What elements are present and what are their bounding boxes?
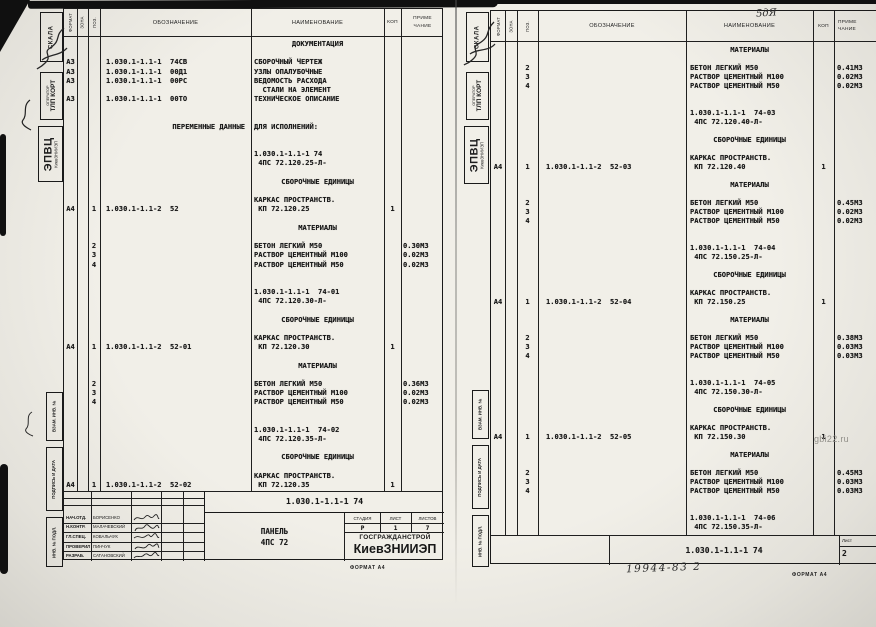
spec-row — [64, 407, 442, 416]
cell-note: 0.45М3 — [834, 468, 876, 477]
cell-qty — [813, 450, 834, 459]
cell-name: 1.030.1-1.1-1 74 — [251, 149, 384, 158]
cell-zone — [505, 153, 517, 162]
cell-note: 0.02М3 — [834, 207, 876, 216]
col-header-qty: КОП — [384, 9, 401, 36]
cell-qty — [813, 234, 834, 243]
cell-qty — [384, 250, 401, 259]
cell-qty — [384, 315, 401, 324]
stage-value: Р — [345, 525, 380, 532]
cell-qty — [813, 207, 834, 216]
cell-qty — [384, 379, 401, 388]
cell-format — [64, 351, 77, 360]
cell-designation — [100, 269, 251, 278]
cell-designation — [538, 234, 686, 243]
cell-zone — [505, 432, 517, 441]
signature-row — [133, 533, 160, 541]
cell-pos: 3 — [517, 207, 538, 216]
spec-row: 4ПС 72.120.40-Л- — [491, 117, 876, 126]
cell-format — [491, 405, 505, 414]
cell-pos — [517, 288, 538, 297]
spec-row: 4РАСТВОР ЦЕМЕНТНЫЙ М500.02М3 — [64, 397, 442, 406]
cell-designation — [100, 361, 251, 370]
cell-name: БЕТОН ЛЕГКИЙ М50 — [251, 379, 384, 388]
cell-designation — [100, 434, 251, 443]
cell-designation — [100, 443, 251, 452]
cell-note — [401, 122, 442, 131]
cell-pos — [88, 452, 100, 461]
cell-zone — [77, 131, 88, 140]
spec-row: 3РАСТВОР ЦЕМЕНТНЫЙ М1000.03М3 — [491, 342, 876, 351]
cell-qty — [384, 94, 401, 103]
cell-qty — [813, 252, 834, 261]
spec-row — [64, 351, 442, 360]
designation-cell: 1.030.1-1.1-1 74 — [204, 491, 444, 513]
approval-name: ПИНЧУК — [93, 544, 110, 549]
cell-qty — [384, 434, 401, 443]
cell-qty — [384, 39, 401, 48]
cell-qty — [384, 57, 401, 66]
cell-format — [491, 468, 505, 477]
cell-name: БЕТОН ЛЕГКИЙ М50 — [686, 468, 813, 477]
spec-row — [491, 396, 876, 405]
spec-row: СБОРОЧНЫЕ ЕДИНИЦЫ — [64, 315, 442, 324]
left-table-body: ДОКУМЕНТАЦИЯА31.030.1-1.1-1 74СВСБОРОЧНЫ… — [64, 36, 442, 494]
cell-name — [686, 306, 813, 315]
cell-note: 0.02М3 — [834, 81, 876, 90]
col-header-name: НАИМЕНОВАНИЕ — [686, 11, 813, 41]
cell-name: МАТЕРИАЛЫ — [686, 315, 813, 324]
cell-name — [251, 324, 384, 333]
cell-format — [491, 135, 505, 144]
spec-row: 2БЕТОН ЛЕГКИЙ М500.41М3 — [491, 63, 876, 72]
spec-row: 1.030.1-1.1-1 74-02 — [64, 425, 442, 434]
col-header-designation: ОБОЗНАЧЕНИЕ — [538, 11, 686, 41]
cell-note — [401, 361, 442, 370]
cell-note — [834, 108, 876, 117]
spec-row: СБОРОЧНЫЕ ЕДИНИЦЫ — [64, 177, 442, 186]
change-table — [64, 491, 204, 513]
cell-zone — [505, 162, 517, 171]
sheet-number-box: Лист 2 — [839, 535, 876, 565]
spec-row: 4РАСТВОР ЦЕМЕНТНЫЙ М500.02М3 — [64, 260, 442, 269]
stamp-podpis-left: ПОДПИСЬ И ДАТА — [46, 447, 63, 511]
cell-note — [401, 204, 442, 213]
cell-name: СБОРОЧНЫЕ ЕДИНИЦЫ — [251, 177, 384, 186]
cell-note — [834, 135, 876, 144]
cell-designation — [538, 135, 686, 144]
spec-row: СБОРОЧНЫЕ ЕДИНИЦЫ — [491, 135, 876, 144]
cell-note — [834, 261, 876, 270]
cell-designation: 1.030.1-1.1-2 52-02 — [100, 480, 251, 489]
cell-note — [834, 513, 876, 522]
cell-format — [491, 360, 505, 369]
cell-pos: 1 — [517, 432, 538, 441]
cell-format — [491, 171, 505, 180]
cell-name — [251, 351, 384, 360]
cell-pos — [88, 462, 100, 471]
stamp-inv-left: ИНВ. № ПОДЛ. — [46, 517, 63, 567]
cell-designation — [538, 495, 686, 504]
cell-name: КП 72.120.35 — [251, 480, 384, 489]
org-name: КиевЗНИИЭП — [54, 137, 59, 171]
cell-name — [686, 504, 813, 513]
cell-designation — [100, 158, 251, 167]
cell-designation — [538, 90, 686, 99]
cell-zone — [505, 306, 517, 315]
cell-format — [491, 324, 505, 333]
cell-zone — [505, 342, 517, 351]
cell-designation — [538, 360, 686, 369]
cell-designation — [538, 504, 686, 513]
cell-format — [491, 81, 505, 90]
cell-zone — [505, 450, 517, 459]
cell-format — [491, 450, 505, 459]
cell-name: КП 72.120.40 — [686, 162, 813, 171]
cell-zone — [505, 180, 517, 189]
cell-zone — [505, 423, 517, 432]
col-note-label-1: ПРИМЕ — [838, 19, 857, 26]
cell-zone — [77, 85, 88, 94]
cell-pos — [517, 387, 538, 396]
cell-qty — [384, 223, 401, 232]
cell-designation — [100, 462, 251, 471]
cell-name: КАРКАС ПРОСТРАНСТВ. — [686, 423, 813, 432]
cell-note — [401, 471, 442, 480]
cell-zone — [505, 333, 517, 342]
spec-row — [491, 54, 876, 63]
spec-row: А411.030.1-1.1-2 52-02 КП 72.120.351 — [64, 480, 442, 489]
org-abbr: ЭПВЦ — [468, 138, 480, 172]
cell-name: СБОРОЧНЫЕ ЕДИНИЦЫ — [686, 405, 813, 414]
cell-format — [64, 232, 77, 241]
cell-name: КАРКАС ПРОСТРАНСТВ. — [251, 195, 384, 204]
cell-pos — [88, 149, 100, 158]
cell-pos — [517, 405, 538, 414]
cell-pos — [88, 214, 100, 223]
cell-zone — [77, 379, 88, 388]
cell-format — [491, 234, 505, 243]
cell-pos: 1 — [517, 162, 538, 171]
cell-note — [401, 186, 442, 195]
cell-qty — [384, 177, 401, 186]
spec-row: 2БЕТОН ЛЕГКИЙ М500.45М3 — [491, 468, 876, 477]
cell-name — [686, 225, 813, 234]
cell-format: А4 — [491, 432, 505, 441]
cell-zone — [505, 477, 517, 486]
cell-name — [686, 234, 813, 243]
cell-zone — [505, 468, 517, 477]
cell-qty — [384, 361, 401, 370]
cell-format — [491, 216, 505, 225]
cell-format — [491, 513, 505, 522]
cell-name: УЗЛЫ ОПАЛУБОЧНЫЕ — [251, 67, 384, 76]
cell-format — [64, 397, 77, 406]
cell-name — [251, 278, 384, 287]
cell-pos — [88, 361, 100, 370]
cell-name: РАСТВОР ЦЕМЕНТНЫЙ М100 — [686, 72, 813, 81]
cell-format — [64, 296, 77, 305]
cell-qty: 1 — [813, 162, 834, 171]
cell-pos — [517, 270, 538, 279]
cell-designation — [538, 513, 686, 522]
cell-note — [834, 117, 876, 126]
cell-pos — [88, 287, 100, 296]
pen-scribble-2 — [22, 410, 36, 438]
cell-qty — [384, 186, 401, 195]
cell-name: КАРКАС ПРОСТРАНСТВ. — [251, 333, 384, 342]
spec-row: 4ПС 72.150.25-Л- — [491, 252, 876, 261]
spec-row — [491, 504, 876, 513]
cell-qty — [813, 81, 834, 90]
cell-format — [64, 113, 77, 122]
cell-designation: ПЕРЕМЕННЫЕ ДАННЫЕ — [100, 122, 251, 131]
spec-row — [64, 214, 442, 223]
cell-note — [834, 360, 876, 369]
cell-note — [834, 504, 876, 513]
cell-note — [401, 452, 442, 461]
cell-pos: 4 — [517, 81, 538, 90]
cell-pos — [88, 76, 100, 85]
cell-zone — [77, 407, 88, 416]
spec-row — [491, 261, 876, 270]
cell-format — [491, 306, 505, 315]
col-header-zone: ЗОНА — [77, 9, 88, 36]
cell-designation — [538, 216, 686, 225]
operator-value: ТЛП КОРТ — [50, 80, 57, 112]
cell-name: БЕТОН ЛЕГКИЙ М50 — [686, 63, 813, 72]
spec-row — [64, 186, 442, 195]
cell-note — [834, 252, 876, 261]
spec-row: 4ПС 72.120.25-Л- — [64, 158, 442, 167]
cell-pos — [517, 117, 538, 126]
stage-sheet-block: СТАДИЯ ЛИСТ ЛИСТОВ Р 1 7 ГОСГРАЖДАНСТРОЙ… — [344, 513, 444, 561]
cell-name: МАТЕРИАЛЫ — [686, 45, 813, 54]
cell-format — [491, 387, 505, 396]
cell-note — [834, 459, 876, 468]
cell-pos — [88, 168, 100, 177]
col-header-pos: ПОЗ. — [88, 9, 100, 36]
spec-row: 2БЕТОН ЛЕГКИЙ М500.45М3 — [491, 198, 876, 207]
cell-designation — [538, 378, 686, 387]
cell-pos: 2 — [517, 63, 538, 72]
cell-format — [491, 225, 505, 234]
cell-format — [64, 39, 77, 48]
cell-name — [251, 370, 384, 379]
cell-note — [401, 223, 442, 232]
cell-pos — [517, 495, 538, 504]
cell-pos — [88, 443, 100, 452]
cell-name: 4ПС 72.150.35-Л- — [686, 522, 813, 531]
cell-name — [251, 214, 384, 223]
cell-format: А4 — [64, 342, 77, 351]
cell-designation — [100, 278, 251, 287]
col-header-note: ПРИМЕ ЧАНИЕ — [401, 9, 444, 36]
cell-qty — [384, 168, 401, 177]
cell-qty — [813, 171, 834, 180]
cell-name: СБОРОЧНЫЕ ЕДИНИЦЫ — [251, 452, 384, 461]
cell-zone — [77, 122, 88, 131]
col-format-label: ФОРМАТ — [68, 13, 73, 32]
cell-qty — [384, 305, 401, 314]
approval-role: Н.КОНТР. — [66, 524, 85, 529]
cell-zone — [505, 189, 517, 198]
cell-designation — [538, 45, 686, 54]
cell-note — [401, 324, 442, 333]
cell-zone — [505, 63, 517, 72]
cell-pos — [88, 48, 100, 57]
cell-pos: 3 — [88, 388, 100, 397]
cell-zone — [77, 305, 88, 314]
cell-pos — [88, 434, 100, 443]
spec-row — [491, 360, 876, 369]
handwritten-doc-number: 19944-83 2 — [626, 561, 702, 576]
approval-role: НАЧ.ОТД. — [66, 515, 86, 520]
spec-row: 3РАСТВОР ЦЕМЕНТНЫЙ М1000.02М3 — [64, 250, 442, 259]
cell-zone — [77, 443, 88, 452]
cell-designation — [100, 416, 251, 425]
spec-row — [64, 269, 442, 278]
cell-name: КП 72.120.30 — [251, 342, 384, 351]
cell-note — [834, 54, 876, 63]
podpis-label: ПОДПИСЬ И ДАТА — [478, 458, 483, 497]
cell-format — [491, 189, 505, 198]
cell-name: РАСТВОР ЦЕМЕНТНЫЙ М100 — [686, 477, 813, 486]
cell-pos — [88, 223, 100, 232]
cell-pos: 1 — [88, 342, 100, 351]
cell-qty — [813, 243, 834, 252]
cell-name — [251, 186, 384, 195]
spec-row: МАТЕРИАЛЫ — [64, 223, 442, 232]
cell-designation — [538, 72, 686, 81]
cell-format — [64, 103, 77, 112]
cell-designation — [100, 397, 251, 406]
cell-qty — [384, 149, 401, 158]
cell-name: РАСТВОР ЦЕМЕНТНЫЙ М100 — [251, 250, 384, 259]
cell-zone — [505, 396, 517, 405]
cell-format — [491, 252, 505, 261]
cell-format — [64, 333, 77, 342]
spec-row — [64, 416, 442, 425]
cell-name — [686, 414, 813, 423]
cell-qty — [813, 288, 834, 297]
cell-name — [686, 360, 813, 369]
cell-note: 0.03М3 — [834, 477, 876, 486]
cell-qty — [813, 216, 834, 225]
cell-format — [491, 495, 505, 504]
spec-row: 4РАСТВОР ЦЕМЕНТНЫЙ М500.02М3 — [491, 216, 876, 225]
cell-format — [64, 168, 77, 177]
col-header-pos: ПОЗ. — [517, 11, 538, 41]
cell-qty — [384, 232, 401, 241]
cell-designation — [538, 180, 686, 189]
cell-qty — [384, 67, 401, 76]
cell-zone — [77, 434, 88, 443]
cell-zone — [505, 288, 517, 297]
cell-format: А3 — [64, 94, 77, 103]
approval-name: МАЛАЧЕВСКИЙ — [93, 524, 125, 529]
cell-qty — [384, 443, 401, 452]
cell-designation — [100, 370, 251, 379]
cell-designation: 1.030.1-1.1-2 52-05 — [538, 432, 686, 441]
spec-row — [491, 126, 876, 135]
cell-qty — [384, 287, 401, 296]
cell-zone — [505, 405, 517, 414]
pen-scribble-1 — [18, 98, 34, 132]
cell-qty — [813, 306, 834, 315]
cell-pos — [88, 57, 100, 66]
handwritten-header-mark: 5дЯ — [756, 7, 777, 19]
cell-pos — [88, 158, 100, 167]
cell-name: СТАЛИ НА ЭЛЕМЕНТ — [251, 85, 384, 94]
cell-note — [401, 287, 442, 296]
cell-designation — [100, 250, 251, 259]
cell-designation — [538, 126, 686, 135]
cell-pos — [517, 225, 538, 234]
cell-designation — [100, 168, 251, 177]
cell-format — [491, 477, 505, 486]
cell-name — [251, 140, 384, 149]
cell-zone — [505, 234, 517, 243]
cell-format — [491, 369, 505, 378]
cell-note: 0.38М3 — [834, 333, 876, 342]
cell-zone — [505, 207, 517, 216]
cell-designation — [100, 351, 251, 360]
cell-format — [491, 414, 505, 423]
cell-zone — [505, 441, 517, 450]
sheet-label: Лист — [842, 538, 852, 543]
cell-zone — [77, 425, 88, 434]
cell-format — [64, 370, 77, 379]
cell-pos — [88, 296, 100, 305]
cell-zone — [505, 135, 517, 144]
cell-note: 0.02М3 — [834, 216, 876, 225]
cell-designation — [538, 243, 686, 252]
cell-zone — [77, 397, 88, 406]
cell-note — [401, 76, 442, 85]
cell-name: 1.030.1-1.1-1 74-05 — [686, 378, 813, 387]
cell-note — [401, 342, 442, 351]
cell-designation — [538, 405, 686, 414]
cell-name: КАРКАС ПРОСТРАНСТВ. — [686, 288, 813, 297]
approval-name: БОРИСЕНКО — [93, 515, 120, 520]
inv-label: ИНВ. № ПОДЛ. — [478, 525, 483, 556]
cell-zone — [77, 223, 88, 232]
cell-designation — [538, 441, 686, 450]
spec-row: МАТЕРИАЛЫ — [491, 45, 876, 54]
cell-name: МАТЕРИАЛЫ — [251, 223, 384, 232]
cell-qty — [384, 351, 401, 360]
cell-note — [834, 423, 876, 432]
cell-format — [64, 287, 77, 296]
cell-format — [491, 99, 505, 108]
cell-pos — [88, 315, 100, 324]
spec-row: 3РАСТВОР ЦЕМЕНТНЫЙ М1000.02М3 — [64, 388, 442, 397]
col-note-label-2: ЧАНИЕ — [838, 26, 856, 33]
cell-note: 0.30М3 — [401, 241, 442, 250]
spec-row — [64, 443, 442, 452]
spec-row: 1.030.1-1.1-1 74-05 — [491, 378, 876, 387]
cell-format — [64, 131, 77, 140]
spec-row: КАРКАС ПРОСТРАНСТВ. — [491, 288, 876, 297]
col-note-label-2: ЧАНИЕ — [413, 23, 431, 30]
cell-format — [64, 48, 77, 57]
cell-zone — [505, 279, 517, 288]
cell-note — [401, 57, 442, 66]
cell-designation — [538, 342, 686, 351]
cell-name — [686, 99, 813, 108]
cell-pos — [88, 113, 100, 122]
